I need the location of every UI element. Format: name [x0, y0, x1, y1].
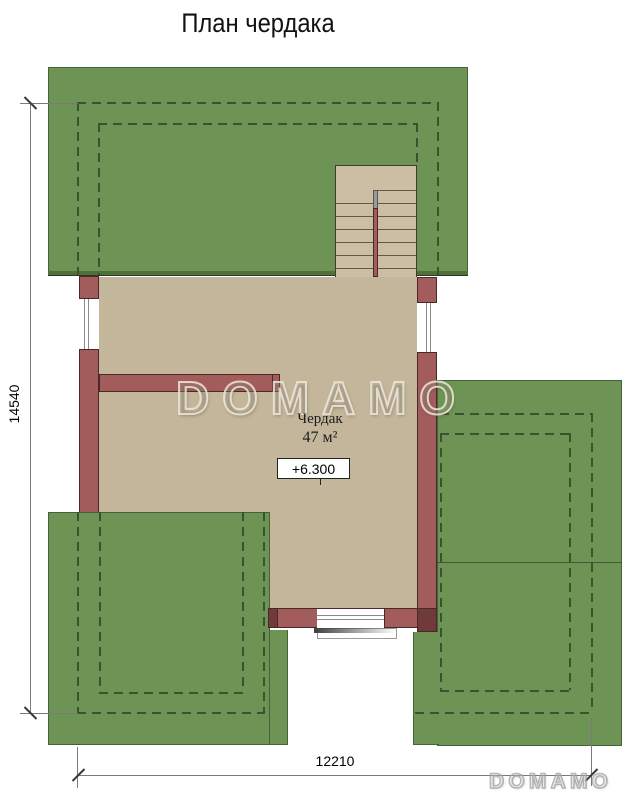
dashed-outline: [437, 102, 439, 275]
window-glazing: [84, 299, 85, 351]
roof-right-wing-extension: [413, 632, 439, 745]
dashed-outline: [77, 512, 79, 712]
window-glazing: [430, 303, 431, 354]
dashed-outline: [263, 512, 265, 712]
page-title: План чердака: [181, 8, 334, 39]
room-area-label: 47 м²: [303, 429, 338, 447]
stairs-right-flight: [378, 190, 416, 277]
dashed-outline: [242, 512, 244, 692]
wall-bottom-left-segment: [277, 608, 318, 628]
attic-plan-drawing: План чердака: [0, 0, 641, 800]
window-glazing: [426, 303, 427, 354]
dashed-outline: [99, 692, 243, 694]
room-name-label: Чердак: [297, 411, 342, 428]
dimension-line-vertical: [30, 103, 31, 713]
level-marker: +6.300: [277, 458, 350, 479]
dashed-outline: [77, 712, 265, 714]
stair-handrail-upper: [373, 190, 378, 209]
window-glazing: [317, 619, 385, 620]
window-glazing: [317, 615, 385, 616]
roof-top-fascia: [417, 271, 468, 276]
wall-right-upper: [417, 277, 437, 303]
window-right: [417, 302, 437, 353]
roof-top-fascia: [48, 271, 335, 276]
wall-left-lower: [79, 349, 99, 514]
dashed-outline: [440, 433, 442, 690]
dimension-label-vertical: 14540: [6, 376, 22, 432]
balcony-step-shadow: [314, 628, 396, 633]
dimension-label-horizontal: 12210: [307, 753, 363, 769]
level-marker-leader: [320, 479, 321, 485]
dimension-extension: [77, 747, 78, 788]
wall-bottom-right-segment: [384, 608, 418, 628]
window-bottom: [317, 608, 385, 628]
stairs-left-flight: [336, 203, 373, 277]
roof-bottom-left-extension: [270, 630, 288, 745]
wall-interior-end-line: [272, 375, 273, 391]
dashed-outline: [440, 433, 571, 435]
dashed-outline: [569, 433, 571, 690]
wall-interior: [99, 374, 280, 392]
stair-divider-wall: [373, 208, 378, 277]
wall-left-upper: [79, 276, 99, 299]
wall-corner-bottom-left: [268, 608, 278, 628]
window-left: [79, 298, 99, 350]
wall-corner-bottom-right: [417, 608, 437, 632]
dimension-line-horizontal: [78, 775, 591, 776]
dashed-outline: [440, 690, 571, 692]
wall-right-lower: [417, 352, 437, 609]
dashed-outline: [77, 102, 438, 104]
dashed-outline: [77, 102, 79, 275]
dashed-outline: [415, 712, 592, 714]
roof-right-ridge-line: [437, 562, 622, 563]
dashed-outline: [416, 123, 418, 165]
roof-bottom-left: [48, 512, 270, 745]
dashed-outline: [591, 413, 593, 713]
dashed-outline: [98, 123, 100, 275]
dashed-outline: [99, 512, 101, 692]
dashed-outline: [98, 123, 417, 125]
window-glazing: [88, 299, 89, 351]
dashed-outline: [440, 413, 592, 415]
